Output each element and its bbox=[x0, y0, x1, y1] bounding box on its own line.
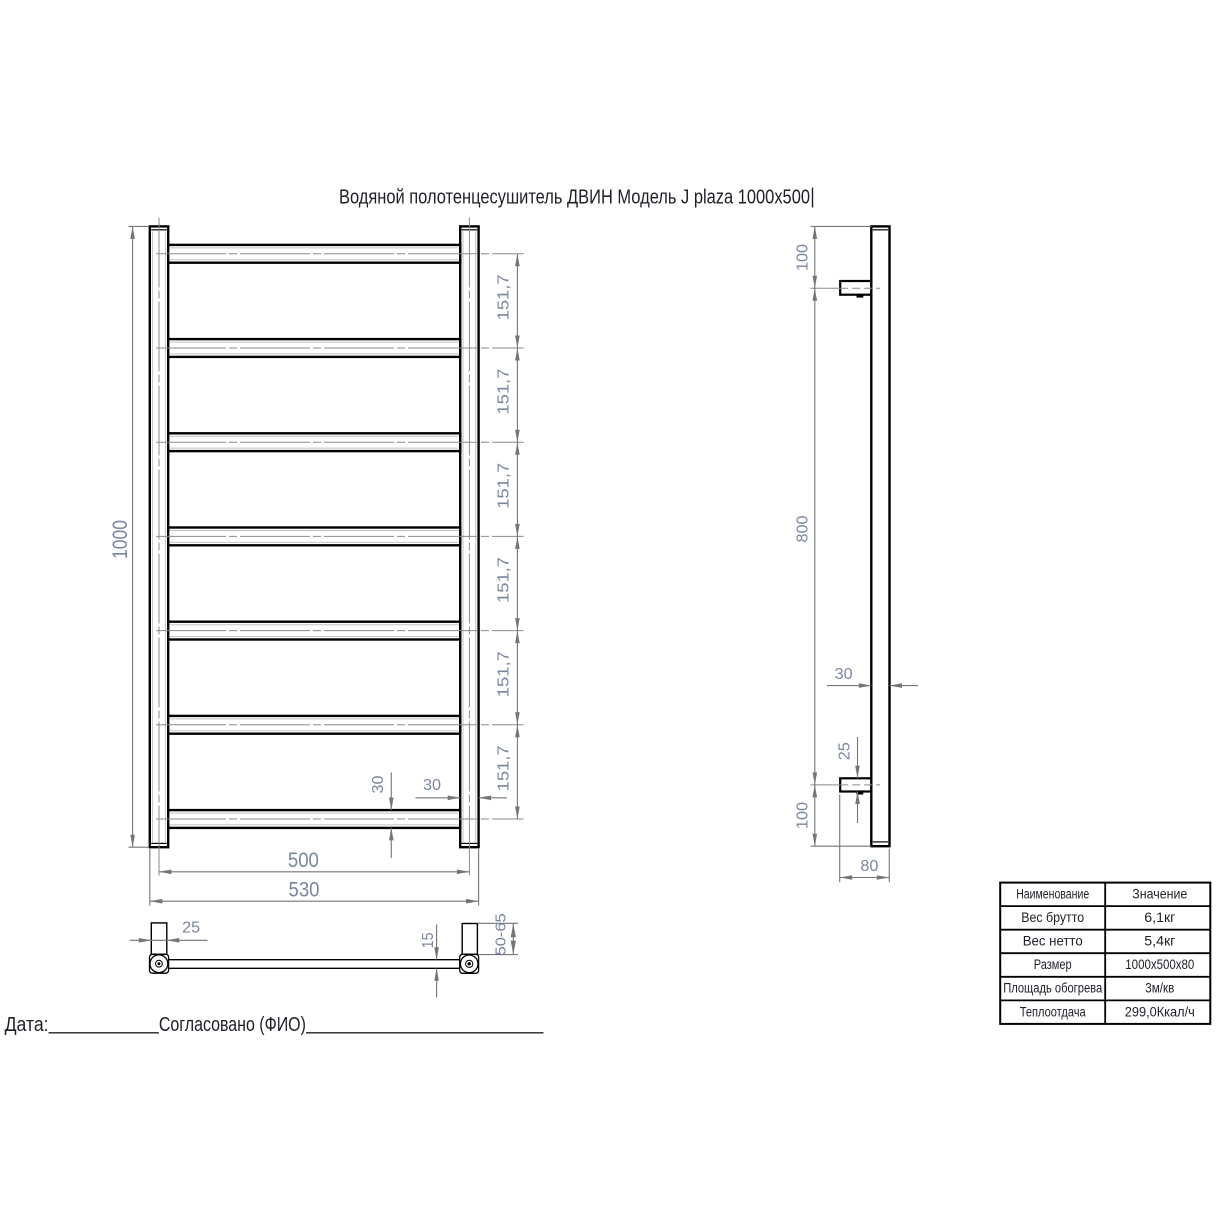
svg-text:299,0Ккал/ч: 299,0Ккал/ч bbox=[1125, 1004, 1195, 1020]
svg-text:100: 100 bbox=[794, 802, 811, 829]
svg-text:Согласовано (ФИО): Согласовано (ФИО) bbox=[159, 1013, 306, 1036]
svg-text:151,7: 151,7 bbox=[496, 557, 513, 603]
svg-text:Наименование: Наименование bbox=[1016, 887, 1089, 903]
svg-text:151,7: 151,7 bbox=[496, 745, 513, 791]
svg-text:5,4кг: 5,4кг bbox=[1144, 934, 1175, 950]
svg-text:30: 30 bbox=[370, 775, 387, 793]
svg-text:151,7: 151,7 bbox=[496, 369, 513, 415]
svg-text:25: 25 bbox=[836, 742, 853, 760]
svg-text:6,1кг: 6,1кг bbox=[1144, 910, 1175, 926]
svg-text:Значение: Значение bbox=[1132, 887, 1187, 903]
svg-text:15: 15 bbox=[420, 932, 437, 948]
svg-text:Теплоотдача: Теплоотдача bbox=[1020, 1004, 1086, 1020]
svg-text:500: 500 bbox=[288, 849, 319, 872]
svg-text:Дата:: Дата: bbox=[5, 1013, 49, 1036]
svg-text:100: 100 bbox=[794, 244, 811, 271]
svg-text:30: 30 bbox=[423, 777, 441, 794]
svg-text:80: 80 bbox=[860, 858, 878, 875]
svg-text:530: 530 bbox=[289, 878, 320, 901]
svg-text:Размер: Размер bbox=[1034, 957, 1072, 973]
svg-text:800: 800 bbox=[794, 515, 811, 542]
svg-text:25: 25 bbox=[182, 920, 200, 937]
svg-text:151,7: 151,7 bbox=[496, 651, 513, 697]
svg-text:3м/кв: 3м/кв bbox=[1145, 981, 1174, 997]
svg-text:50-65: 50-65 bbox=[493, 913, 510, 955]
svg-text:Водяной полотенцесушитель ДВИН: Водяной полотенцесушитель ДВИН Модель J … bbox=[339, 186, 810, 209]
svg-text:151,7: 151,7 bbox=[496, 274, 513, 320]
svg-text:Площадь обогрева: Площадь обогрева bbox=[1003, 981, 1102, 997]
svg-text:30: 30 bbox=[835, 666, 853, 683]
svg-text:Вес брутто: Вес брутто bbox=[1021, 910, 1084, 926]
svg-text:1000: 1000 bbox=[109, 520, 132, 559]
svg-text:151,7: 151,7 bbox=[496, 463, 513, 509]
svg-text:Вес нетто: Вес нетто bbox=[1023, 934, 1083, 950]
svg-text:1000х500х80: 1000х500х80 bbox=[1125, 957, 1194, 973]
